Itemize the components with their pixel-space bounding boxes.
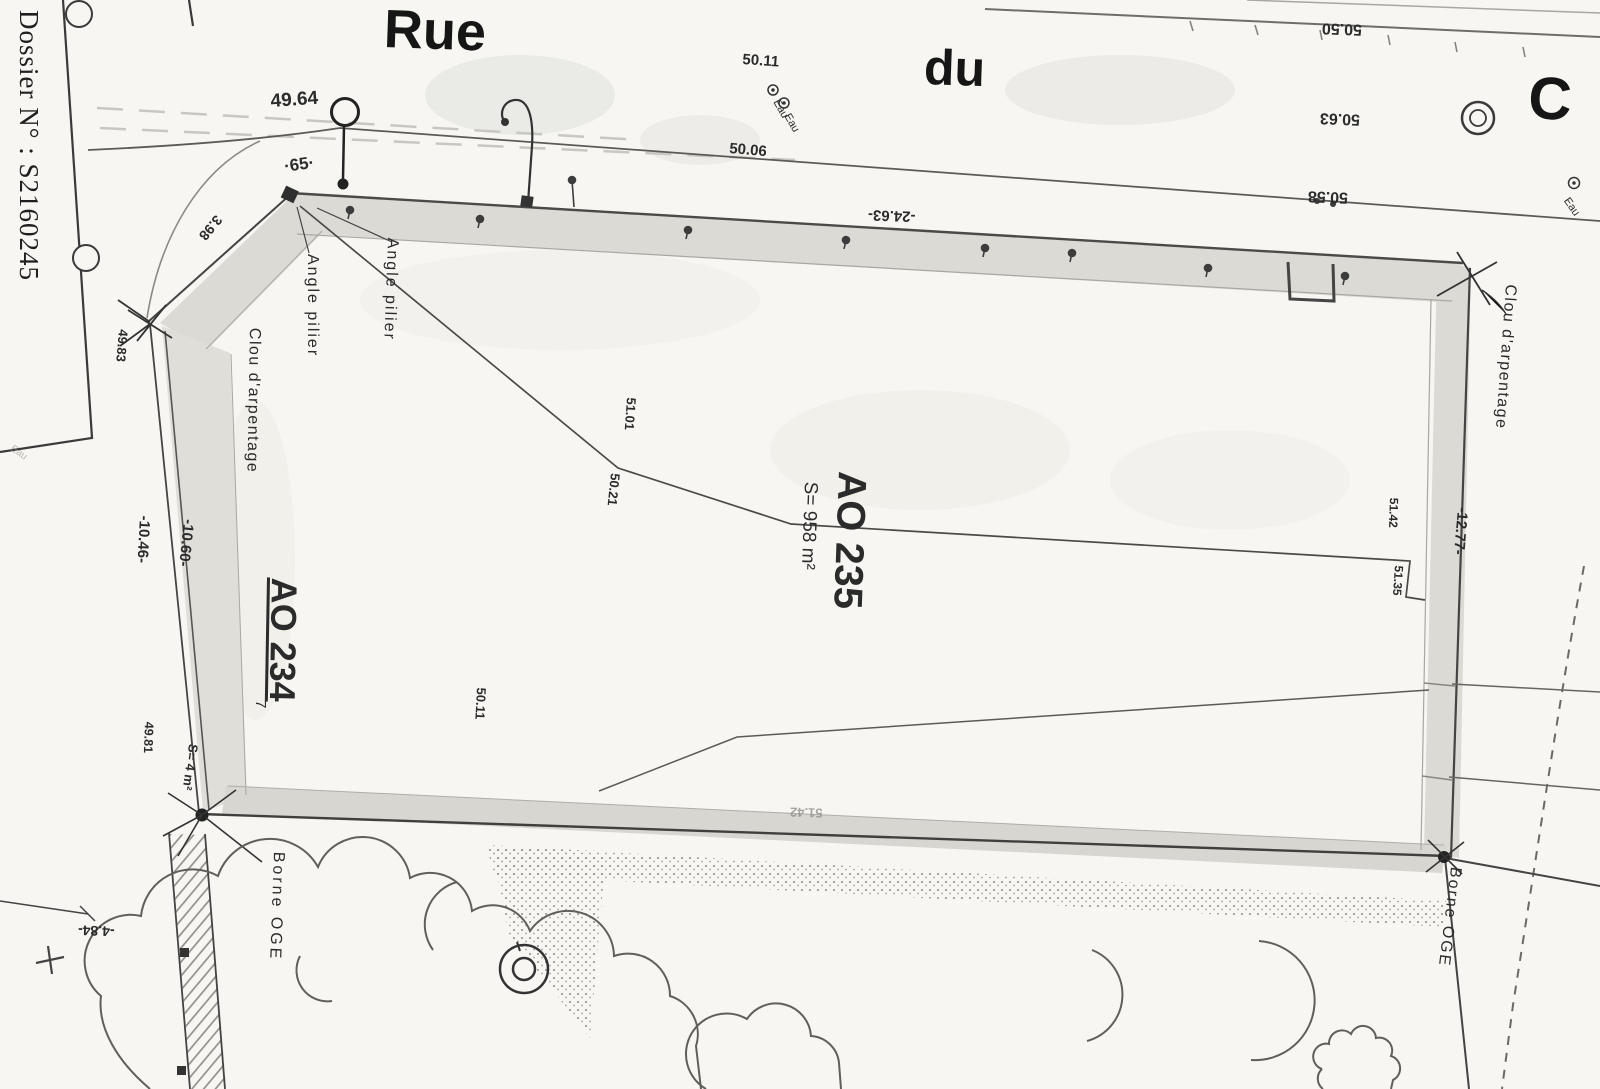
street-letter-c: C — [1527, 68, 1573, 130]
spot-height-50-06: 50.06 — [729, 141, 768, 159]
point-65: ·65· — [283, 154, 315, 175]
spot-height-49-64: 49.64 — [270, 89, 319, 111]
spot-height-51-42: 51.42 — [1387, 498, 1400, 528]
survey-plan-scan: Dossier N° : S2160245 Rue du C 49.64 50.… — [0, 0, 1600, 1089]
spot-height-51-01: 51.01 — [623, 397, 638, 430]
punch-hole-top — [66, 1, 92, 27]
street-name-rue: Rue — [383, 2, 487, 60]
spot-height-50-63: 50.63 — [1320, 109, 1361, 126]
angle-pilier-label-2: Angle pilier — [380, 237, 400, 341]
dim-4-84: -4.84- — [78, 923, 115, 938]
parcel-id-ao234: AO 234 — [264, 577, 302, 702]
borne-oge-label-sw: Borne OGE — [266, 851, 286, 961]
street-name-du: du — [923, 42, 986, 94]
parcel-ao234-index: 7 — [253, 700, 268, 708]
spot-height-50-58: 50.58 — [1308, 187, 1349, 204]
manhole-icon — [1462, 102, 1494, 134]
stipple-path — [488, 845, 1446, 1038]
spot-height-50-11-bottom: 50.11 — [473, 687, 488, 719]
wall-east — [1424, 263, 1471, 858]
wall-northwest — [160, 196, 323, 350]
spot-height-51-35: 51.35 — [1391, 565, 1405, 596]
wall-south — [222, 786, 1446, 873]
scan-smudges — [215, 55, 1350, 720]
spot-height-49-83: 49.83 — [114, 329, 130, 363]
hedge-dashed-line — [1502, 566, 1584, 1089]
punch-hole-bottom — [73, 245, 99, 271]
dossier-number: Dossier N° : S2160245 — [15, 10, 42, 281]
spot-height-wall-faint: 51.42 — [790, 805, 823, 819]
south-feature-line — [599, 690, 1429, 791]
parcel-id-ao235: AO 235 — [827, 471, 872, 610]
dim-10-46: -10.46- — [135, 515, 152, 563]
street-kerbs — [88, 0, 1600, 221]
lamp-post-icon — [332, 99, 359, 190]
kerb-north — [985, 9, 1600, 37]
neighbour-boundaries — [1445, 566, 1600, 1089]
area-ao235: S= 958 m² — [798, 481, 820, 570]
spot-height-50-11-top: 50.11 — [742, 52, 780, 70]
spot-height-50-50: 50.50 — [1322, 19, 1363, 36]
clou-arpentage-label-west: Clou d'arpentage — [243, 328, 262, 474]
dim-12-77: -12.77- — [1451, 507, 1470, 556]
spot-height-49-81: 49.81 — [141, 722, 155, 754]
angle-pilier-label-1: Angle pilier — [304, 254, 320, 357]
spot-height-50-21: 50.21 — [606, 473, 622, 507]
dim-24-63: -24.63- — [868, 207, 916, 224]
